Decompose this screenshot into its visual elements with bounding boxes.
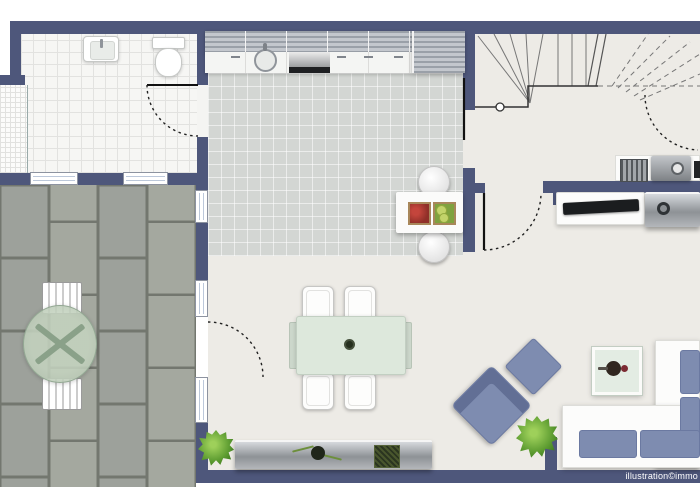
wall-bath-left	[10, 21, 21, 77]
window-west-2	[195, 280, 208, 317]
ribbed-device	[620, 159, 648, 182]
window-bath-2	[123, 172, 168, 185]
window-pane	[33, 176, 75, 181]
window-pane	[126, 176, 165, 181]
cabinet-handle	[394, 56, 403, 58]
dining-chair	[344, 372, 376, 410]
tall-cabinet	[412, 31, 465, 73]
sofa-cushion	[640, 430, 700, 458]
bathroom-door-gap	[197, 85, 208, 137]
fruit	[621, 365, 628, 372]
sink	[83, 36, 119, 62]
shower-grid	[0, 85, 28, 173]
vase	[311, 446, 325, 460]
crate-red-produce	[408, 202, 431, 225]
kitchen-sink	[254, 49, 277, 72]
sideboard	[235, 440, 432, 469]
floor-plan: illustration©immo	[0, 0, 700, 500]
faucet	[100, 39, 103, 48]
small-device	[694, 161, 700, 178]
wall-kitchen-hall-lower	[463, 168, 475, 252]
dining-chair	[302, 372, 334, 410]
watermark-text: illustration©immo	[450, 470, 698, 483]
side-unit-knob	[657, 202, 670, 215]
window-pane	[199, 283, 204, 314]
window-pane	[199, 193, 204, 220]
wall-left-stub	[0, 75, 25, 85]
kitchen-upper-cabinets	[205, 31, 412, 54]
kitchen-faucet	[263, 43, 267, 51]
printer-button	[671, 162, 684, 175]
stove	[289, 52, 330, 67]
table-centerpiece	[344, 339, 355, 350]
terrace-table	[23, 305, 97, 383]
cabinet-handle	[337, 56, 346, 58]
spoon	[598, 367, 608, 370]
bowl	[606, 361, 621, 376]
window-west-1	[195, 190, 208, 223]
wall-door-stub	[475, 183, 485, 193]
window-west-3	[195, 377, 208, 423]
sofa-cushion	[579, 430, 637, 458]
window-pane	[199, 380, 204, 420]
stool-bottom	[418, 231, 450, 263]
window-bath-1	[30, 172, 78, 185]
wall-west-seg2	[196, 223, 208, 280]
crate-green-produce	[433, 202, 456, 225]
wall-bath-right-lower	[197, 137, 208, 173]
moss-box	[374, 445, 400, 468]
cabinet-handle	[231, 56, 240, 58]
sofa-cushion	[680, 350, 700, 394]
side-unit	[645, 192, 700, 227]
stove-panel	[289, 67, 330, 73]
toilet-bowl	[155, 48, 182, 77]
cabinet-handle	[364, 56, 373, 58]
